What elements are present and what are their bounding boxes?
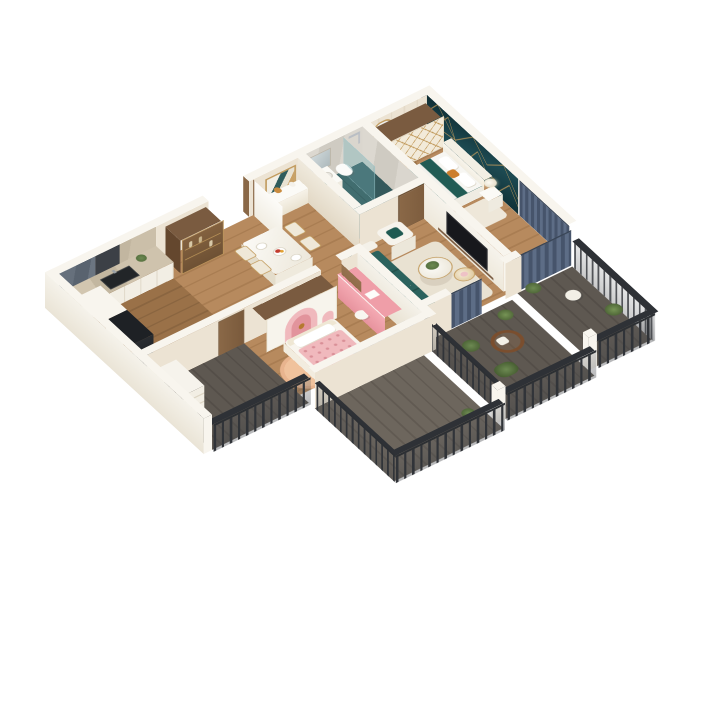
shower-pipe [358,131,360,144]
table-plant [423,259,441,271]
chair-cushion [495,336,510,346]
plate [254,241,270,251]
left-wall-end [204,415,212,455]
brand-logo: EZ ▪▪▪▪▪ ▪▪▪▪▪▪ [195,498,243,545]
desk-paper [364,289,380,299]
logo-tagline: ▪▪▪▪▪ ▪▪▪▪▪▪ [195,540,243,545]
armchair-teal-pillow [385,226,405,239]
flower-dish [459,271,470,278]
render-canvas: EZ ▪▪▪▪▪ ▪▪▪▪▪▪ [0,0,705,705]
logo-mark: EZ [193,498,246,538]
